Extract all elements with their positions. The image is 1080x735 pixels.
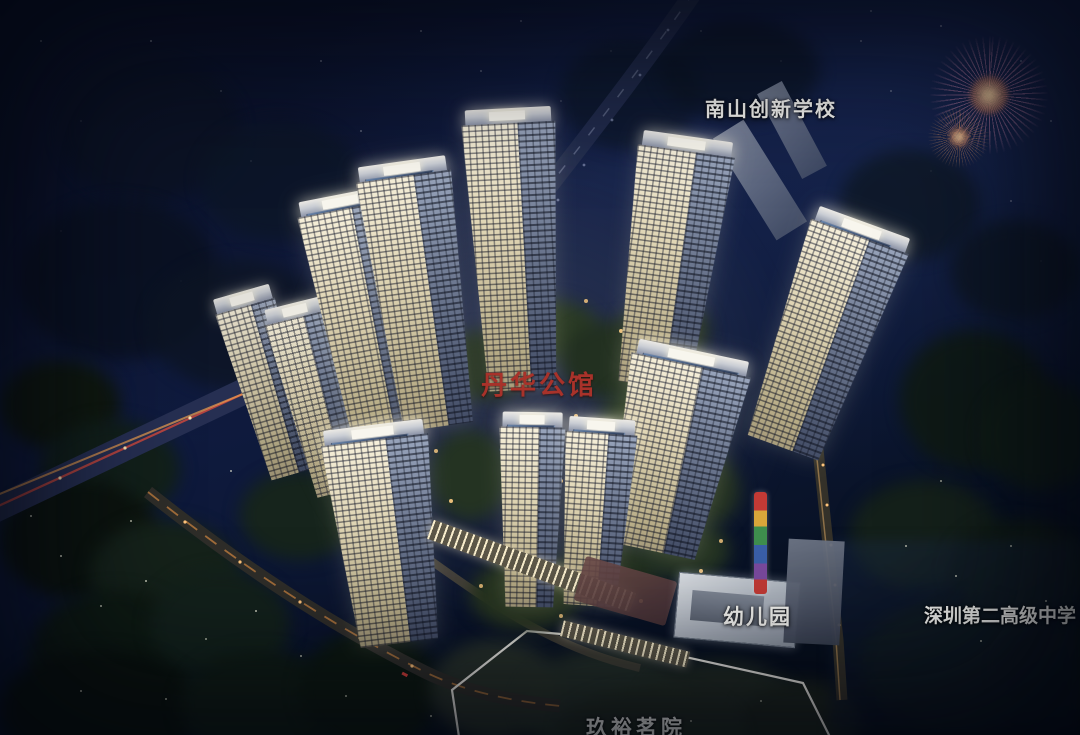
annex-building (783, 539, 844, 646)
roof-crown (281, 303, 308, 318)
tree-lights (0, 0, 2, 2)
vehicle (401, 672, 408, 677)
roof-crown (667, 136, 706, 150)
high-school-label: 深圳第二高级中学 (924, 601, 1076, 628)
roof-crown (489, 110, 526, 121)
school-north-label: 南山创新学校 (705, 93, 837, 122)
decorative-stripe-column (754, 492, 767, 594)
night-aerial-rendering: 南山创新学校 丹华公馆 幼儿园 深圳第二高级中学 玖裕茗院 (0, 0, 1080, 735)
neighbor-estate-label: 玖裕茗院 (586, 712, 686, 735)
kindergarten-label: 幼儿园 (723, 601, 792, 631)
firework-burst-small (928, 106, 990, 168)
project-name-label: 丹华公馆 (481, 365, 597, 402)
roof-crown (519, 415, 545, 424)
tower-facade-lit (496, 426, 539, 607)
residential-tower (461, 106, 570, 393)
